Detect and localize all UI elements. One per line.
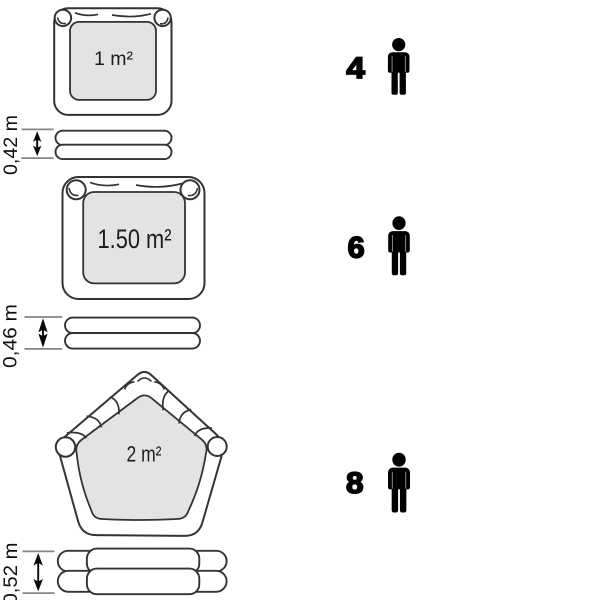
svg-text:0,52 m: 0,52 m [1,543,22,600]
svg-text:0,42 m: 0,42 m [1,115,22,175]
svg-text:1 m²: 1 m² [94,48,134,70]
svg-text:0,46 m: 0,46 m [0,304,21,368]
svg-text:4: 4 [346,52,365,85]
svg-text:1.50 m²: 1.50 m² [98,224,172,254]
svg-text:2 m²: 2 m² [127,442,162,467]
svg-text:6: 6 [348,232,365,265]
svg-text:8: 8 [346,467,364,500]
